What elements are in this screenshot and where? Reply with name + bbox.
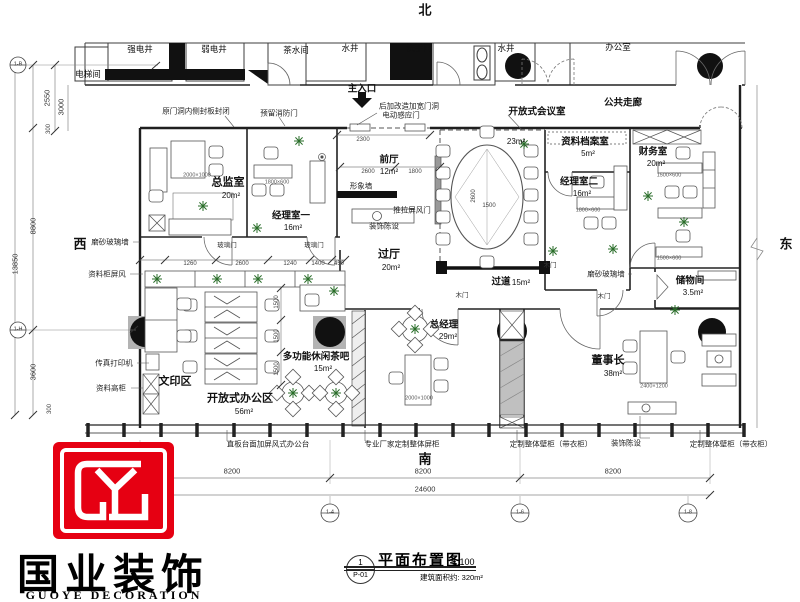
room-label: 茶水间 bbox=[283, 46, 309, 55]
room-area-label: 3.5m² bbox=[683, 289, 703, 297]
door-label: 木门 bbox=[456, 293, 469, 300]
annotation-label: 电动感应门 bbox=[382, 111, 420, 119]
dimension-label: 1240 bbox=[283, 261, 296, 267]
axis-bubble-label: 1-6 bbox=[516, 510, 524, 516]
door-label: 木门 bbox=[544, 263, 557, 270]
room-label: 多功能休闲茶吧 bbox=[283, 352, 350, 362]
dimension-label: 300 bbox=[46, 124, 52, 134]
annotation-label: 形象墙 bbox=[350, 182, 373, 190]
furniture-size-label: 1800×600 bbox=[576, 208, 601, 214]
compass-west: 西 bbox=[73, 238, 86, 251]
axis-bubble-label: 1-4 bbox=[326, 510, 334, 516]
axis-bubble-label: 1-B bbox=[14, 62, 23, 68]
dimension-label: 3000 bbox=[57, 99, 65, 116]
dimension-label: 1800 bbox=[408, 169, 421, 175]
dimension-label: 1500 bbox=[274, 329, 280, 342]
room-area-label: 20m² bbox=[222, 192, 240, 200]
room-label: 储物间 bbox=[676, 276, 705, 286]
room-label: 办公室 bbox=[605, 43, 631, 52]
compass-east: 东 bbox=[779, 238, 792, 251]
compass-north: 北 bbox=[418, 4, 431, 17]
door-label: 玻璃门 bbox=[217, 243, 237, 250]
room-area-label: 16m² bbox=[284, 224, 302, 232]
room-label: 洗手间 bbox=[406, 44, 432, 53]
dimension-label: 2300 bbox=[356, 137, 369, 143]
dimension-label: 24600 bbox=[415, 485, 436, 493]
room-area-label: 56m² bbox=[235, 408, 253, 416]
room-area-label: 12m² bbox=[380, 168, 398, 176]
dimension-label: 8800 bbox=[29, 218, 37, 235]
annotation-label: 推拉屏风门 bbox=[393, 206, 431, 214]
annotation-label: 直板台面加屏风式办公台 bbox=[227, 440, 310, 448]
room-label: 开放式办公区 bbox=[207, 394, 273, 405]
room-label: 水井 bbox=[341, 44, 358, 53]
door-label: 玻璃门 bbox=[304, 243, 324, 250]
dimension-label: 2550 bbox=[43, 90, 51, 107]
door-label: 木门 bbox=[598, 294, 611, 301]
floor-plan-sheet: 北西东南电梯间强电井弱电井茶水间水井洗手间水井办公室公共走廊原门洞内侧封板封闭预… bbox=[0, 0, 800, 602]
annotation-label: 后加改造加宽门洞 bbox=[379, 102, 439, 110]
annotation-label: 磨砂玻璃墙 bbox=[587, 270, 625, 278]
furniture-size-label: 2000×1000 bbox=[405, 396, 433, 402]
room-label: 过厅 bbox=[378, 250, 400, 261]
room-label: 强电井 bbox=[127, 45, 153, 54]
room-label: 弱电井 bbox=[201, 45, 227, 54]
annotation-label: 装饰陈设 bbox=[369, 222, 399, 230]
dimension-label: 1260 bbox=[183, 261, 196, 267]
annotation-label: 原门洞内侧封板封闭 bbox=[162, 107, 230, 115]
room-label: 主入口 bbox=[348, 84, 377, 94]
room-label: 文印区 bbox=[159, 377, 192, 388]
room-area-label: 16m² bbox=[573, 190, 591, 198]
dimension-label: 2600 bbox=[235, 261, 248, 267]
annotation-label: 资料柜屏风 bbox=[88, 270, 126, 278]
room-label: 公共走廊 bbox=[604, 98, 642, 108]
room-area-label: 29m² bbox=[439, 333, 457, 341]
room-label: 前厅 bbox=[379, 155, 398, 165]
compass-south: 南 bbox=[418, 453, 431, 466]
room-area-label: 20m² bbox=[647, 160, 665, 168]
dimension-label: 13850 bbox=[11, 254, 19, 275]
furniture-size-label: 1800×600 bbox=[265, 180, 290, 186]
room-label: 过道 bbox=[491, 277, 510, 287]
annotation-label: 传真打印机 bbox=[95, 359, 133, 367]
room-label: 水井 bbox=[497, 44, 514, 53]
annotation-label: 资料高柜 bbox=[96, 384, 126, 392]
dimension-label: 8200 bbox=[605, 467, 622, 475]
dimension-label: 1400 bbox=[311, 261, 324, 267]
room-label: 董事长 bbox=[592, 356, 625, 367]
title-underline-thin bbox=[344, 570, 476, 571]
axis-bubble-label: 1-H bbox=[14, 327, 23, 333]
dimension-label: 1500 bbox=[274, 362, 280, 375]
room-area-label: 23m² bbox=[507, 138, 525, 146]
dimension-label: 2600 bbox=[361, 169, 374, 175]
guoye-logo-mark-icon bbox=[53, 442, 174, 539]
annotation-label: 专业厂家定制整体屏柜 bbox=[365, 440, 440, 448]
furniture-size-label: 1500×600 bbox=[657, 256, 682, 262]
room-area-label: 15m² bbox=[512, 279, 530, 287]
room-area-label: 15m² bbox=[314, 365, 332, 373]
room-area-label: 20m² bbox=[382, 264, 400, 272]
annotation-label: 定制整体壁柜（带衣柜） bbox=[690, 440, 773, 448]
room-label: 经理室一 bbox=[272, 211, 310, 221]
room-label: 总经理 bbox=[430, 320, 459, 330]
room-area-label: 38m² bbox=[604, 370, 622, 378]
room-area-label: 5m² bbox=[581, 150, 595, 158]
dimension-label: 1500 bbox=[274, 295, 280, 308]
building-area-note: 建筑面积约: 320m² bbox=[420, 572, 483, 583]
room-label: 财务室 bbox=[639, 147, 668, 157]
room-label: 资料档案室 bbox=[561, 137, 609, 147]
dimension-label: 8200 bbox=[415, 467, 432, 475]
room-label: 经理室二 bbox=[560, 177, 598, 187]
annotation-label: 装饰陈设 bbox=[611, 439, 641, 447]
annotation-label: 定制整体壁柜（带衣柜） bbox=[510, 440, 593, 448]
room-label: 开放式会议室 bbox=[508, 107, 565, 117]
title-underline bbox=[344, 566, 476, 568]
furniture-size-label: 2000×1000 bbox=[183, 173, 211, 179]
dimension-label: 300 bbox=[47, 404, 53, 414]
dimension-label: 3600 bbox=[29, 364, 37, 381]
furniture-size-label: 2400×1200 bbox=[640, 384, 668, 390]
axis-bubble-label: 1-8 bbox=[684, 510, 692, 516]
room-label: 总监室 bbox=[212, 178, 245, 189]
logo-english-name: GUOYE DECORATION bbox=[6, 588, 222, 602]
dimension-label: 450 bbox=[334, 261, 344, 267]
dimension-label: 1500 bbox=[482, 203, 495, 209]
annotation-label: 预留消防门 bbox=[260, 109, 298, 117]
furniture-size-label: 1500×600 bbox=[657, 173, 682, 179]
room-label: 电梯间 bbox=[75, 70, 101, 79]
dimension-label: 2600 bbox=[471, 189, 477, 202]
dimension-label: 8200 bbox=[224, 467, 241, 475]
annotation-label: 磨砂玻璃墙 bbox=[91, 238, 129, 246]
